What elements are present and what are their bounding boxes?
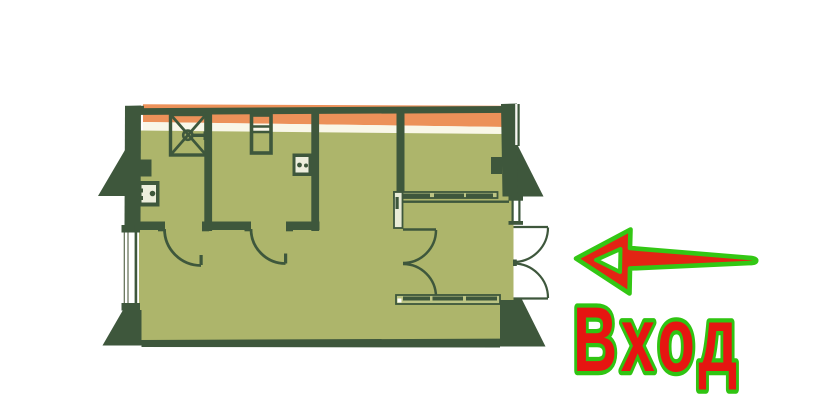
svg-text:Вход: Вход <box>573 287 742 391</box>
